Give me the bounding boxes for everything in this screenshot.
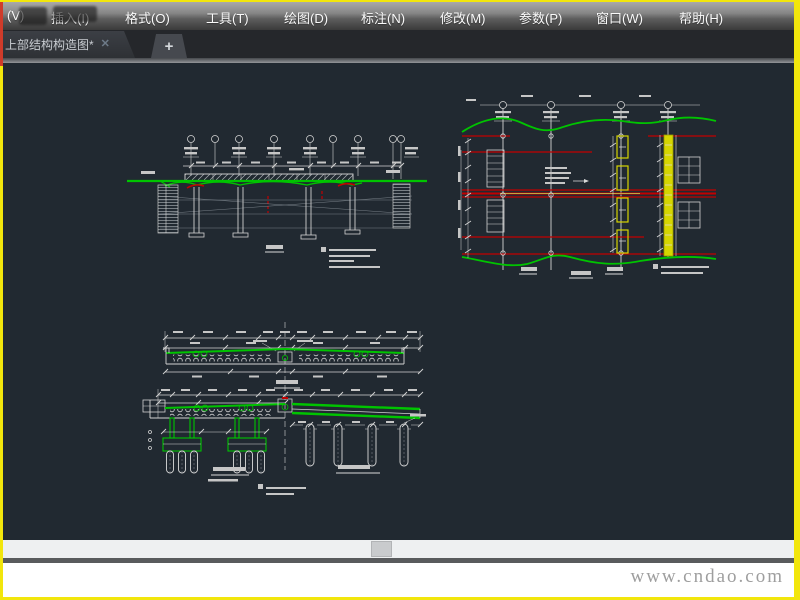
capture-border-left-yellow [0,66,3,600]
menu-modify[interactable]: 修改(M) [440,8,486,27]
menu-window[interactable]: 窗口(W) [596,8,643,27]
cross-section-drawings [143,322,426,495]
menu-draw[interactable]: 绘图(D) [284,8,328,27]
menu-dimension[interactable]: 标注(N) [361,8,405,27]
capture-border-left-red [0,2,3,66]
tab-active-drawing[interactable]: 上部结构构造图* ✕ [3,31,135,58]
new-tab-button[interactable]: + [151,34,187,58]
plus-icon: + [165,39,174,54]
menu-tools[interactable]: 工具(T) [206,8,249,27]
capture-border-top [0,0,800,2]
screen-capture-artifact [53,6,97,22]
menu-bar: (V) 插入(I) 格式(O) 工具(T) 绘图(D) 标注(N) 修改(M) … [3,2,794,31]
menu-help[interactable]: 帮助(H) [679,8,723,27]
tab-title: 上部结构构造图* [5,36,94,53]
cad-drawing-canvas[interactable] [3,63,794,540]
menu-parameters[interactable]: 参数(P) [519,8,562,27]
menu-format[interactable]: 格式(O) [125,8,170,27]
elevation-view-drawing [127,136,427,269]
watermark-text: www.cndao.com [630,566,784,588]
drawing-tab-bar: 上部结构构造图* ✕ + [3,30,794,63]
scrollbar-thumb[interactable] [371,541,392,557]
app-window: (V) 插入(I) 格式(O) 工具(T) 绘图(D) 标注(N) 修改(M) … [0,0,800,600]
screen-capture-artifact [19,7,47,25]
horizontal-scrollbar[interactable] [3,540,794,558]
plan-view-drawing [458,95,716,278]
bottom-strip: www.cndao.com [3,563,794,597]
close-icon[interactable]: ✕ [101,39,110,50]
capture-border-right [794,0,800,600]
